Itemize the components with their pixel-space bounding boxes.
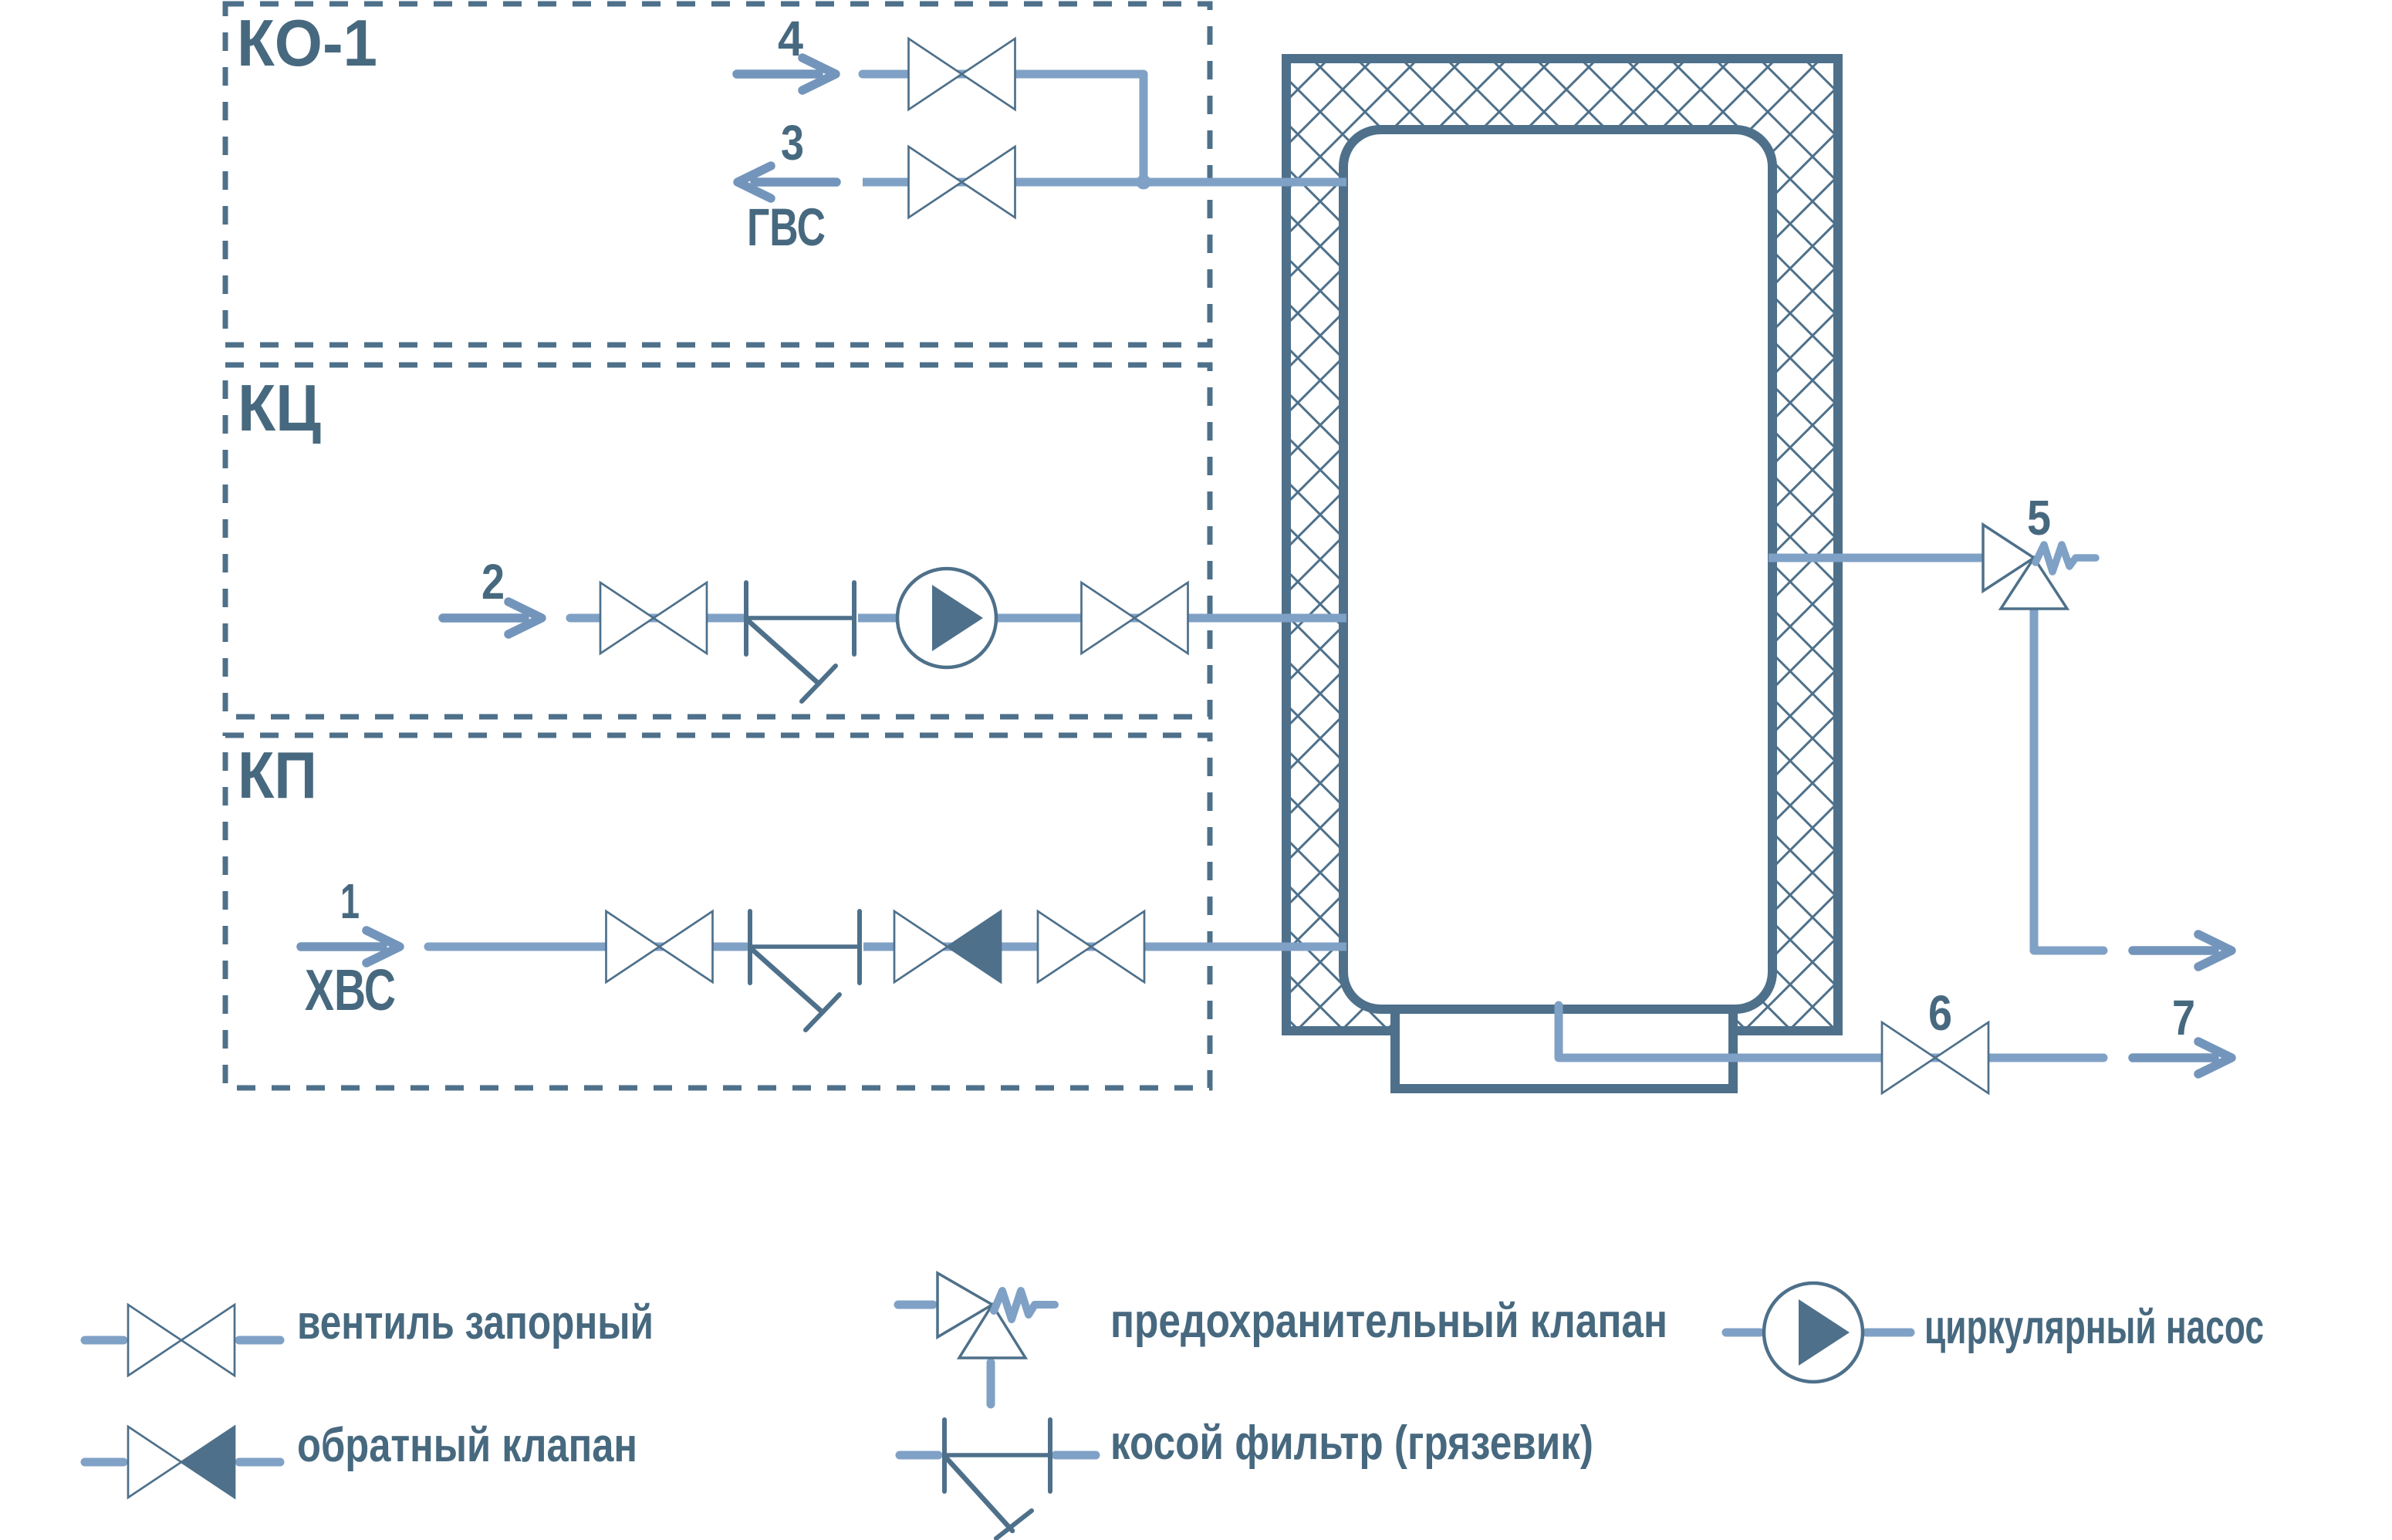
svg-text:1: 1 xyxy=(340,873,360,929)
svg-text:КО-1: КО-1 xyxy=(237,7,377,80)
svg-text:6: 6 xyxy=(1928,985,1952,1041)
svg-text:4: 4 xyxy=(778,11,803,66)
svg-text:3: 3 xyxy=(781,115,804,171)
svg-text:предохранительный клапан: предохранительный клапан xyxy=(1110,1295,1667,1348)
svg-text:обратный клапан: обратный клапан xyxy=(297,1419,637,1472)
svg-text:5: 5 xyxy=(2027,490,2051,545)
svg-text:вентиль запорный: вентиль запорный xyxy=(297,1296,654,1349)
svg-text:ГВС: ГВС xyxy=(747,198,826,257)
svg-text:ХВС: ХВС xyxy=(305,957,396,1022)
svg-text:косой фильтр (грязевик): косой фильтр (грязевик) xyxy=(1110,1417,1593,1470)
svg-text:циркулярный насос: циркулярный насос xyxy=(1924,1301,2264,1354)
svg-text:КЦ: КЦ xyxy=(238,372,321,445)
svg-text:2: 2 xyxy=(481,554,505,610)
svg-text:7: 7 xyxy=(2172,990,2195,1045)
svg-text:КП: КП xyxy=(238,739,317,812)
